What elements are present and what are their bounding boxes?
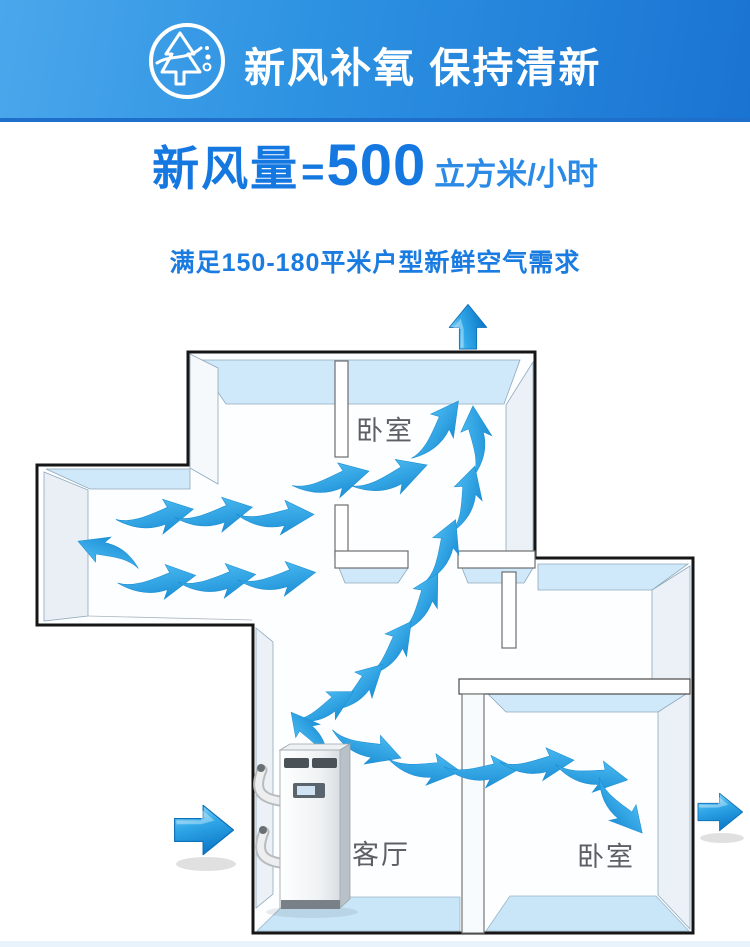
headline-unit: 立方米/小时 — [434, 149, 598, 194]
room-label-bedroom-bottom: 卧室 — [577, 842, 635, 872]
headline-equals: = — [301, 150, 324, 195]
unit-vent-grille — [284, 758, 309, 768]
pipe-connector — [257, 764, 265, 772]
headline: 新风量=500立方米/小时 — [0, 130, 750, 199]
banner-title: 新风补氧 保持清新 — [244, 34, 601, 94]
unit-vent-grille — [312, 758, 337, 768]
room-label-living: 客厅 — [352, 840, 410, 870]
unit-base — [281, 900, 340, 909]
floorplan-diagram: 卧室 客厅 卧室 — [0, 290, 750, 947]
headline-prefix: 新风量 — [152, 130, 299, 199]
air-outlet-arrow-right — [698, 793, 744, 843]
header-banner: 新风补氧 保持清新 — [0, 0, 750, 122]
air-outlet-arrow-top — [449, 304, 486, 349]
headline-value: 500 — [326, 132, 426, 199]
subtitle: 满足150-180平米户型新鲜空气需求 — [0, 243, 750, 279]
next-section-edge — [0, 941, 750, 947]
air-inlet-arrow-left — [175, 805, 236, 871]
pipe-connector — [259, 826, 267, 834]
pine-tree-icon — [146, 20, 228, 102]
room-label-bedroom-top: 卧室 — [356, 416, 414, 446]
